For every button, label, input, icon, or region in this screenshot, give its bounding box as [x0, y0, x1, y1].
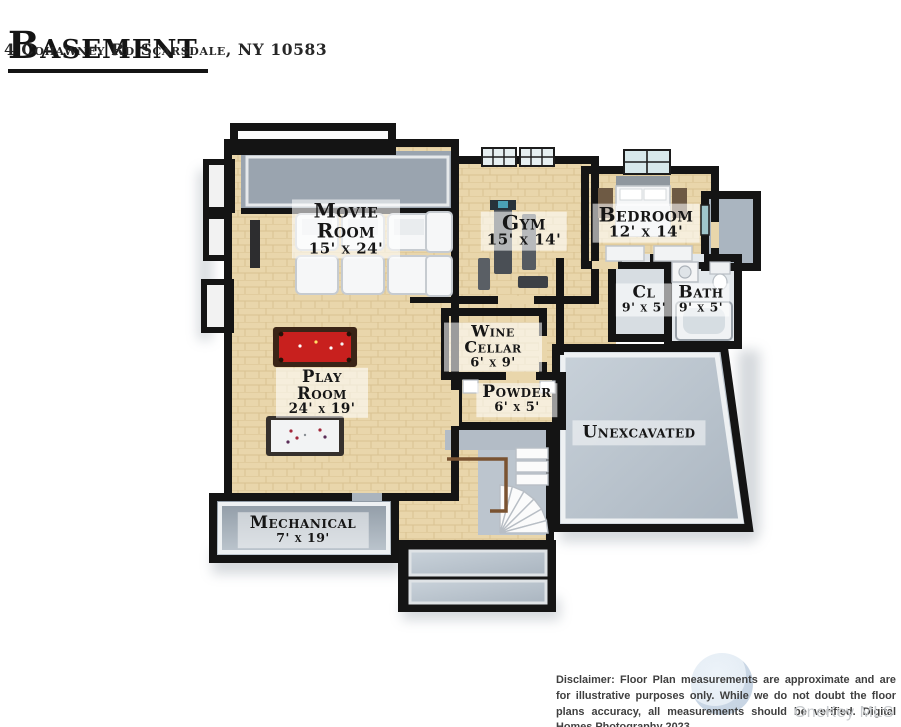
room-label-closet: Cl 9' x 5': [616, 283, 672, 316]
tv: [250, 220, 260, 268]
mls-watermark: OneKey MLS: [794, 704, 894, 722]
gym-window-1: [482, 148, 516, 166]
toilet: [710, 262, 730, 274]
bump-window: [701, 205, 709, 235]
floor-plan-page: Basement 4 Cohawney Rd Scarsdale, NY 105…: [0, 0, 901, 727]
room-label-bath: Bath 9' x 5': [672, 283, 729, 316]
room-label-play-room: Play Room 24' x 19': [276, 368, 368, 418]
room-label-gym: Gym 15' x 14': [481, 212, 567, 251]
pool-table: [273, 327, 357, 367]
room-label-mechanical: Mechanical 7' x 19': [238, 512, 369, 548]
room-label-wine-cellar: Wine Cellar 6' x 9': [444, 323, 542, 372]
room-label-unexcavated: Unexcavated: [572, 420, 705, 445]
bedroom-window: [624, 150, 670, 174]
gym-window-2: [520, 148, 554, 166]
room-label-movie-room: Movie Room 15' x 24': [292, 199, 400, 258]
air-hockey-table: [266, 416, 344, 456]
bulkhead: [398, 540, 556, 612]
room-label-bedroom: Bedroom 12' x 14': [593, 204, 700, 243]
room-label-powder: Powder 6' x 5': [476, 383, 557, 417]
